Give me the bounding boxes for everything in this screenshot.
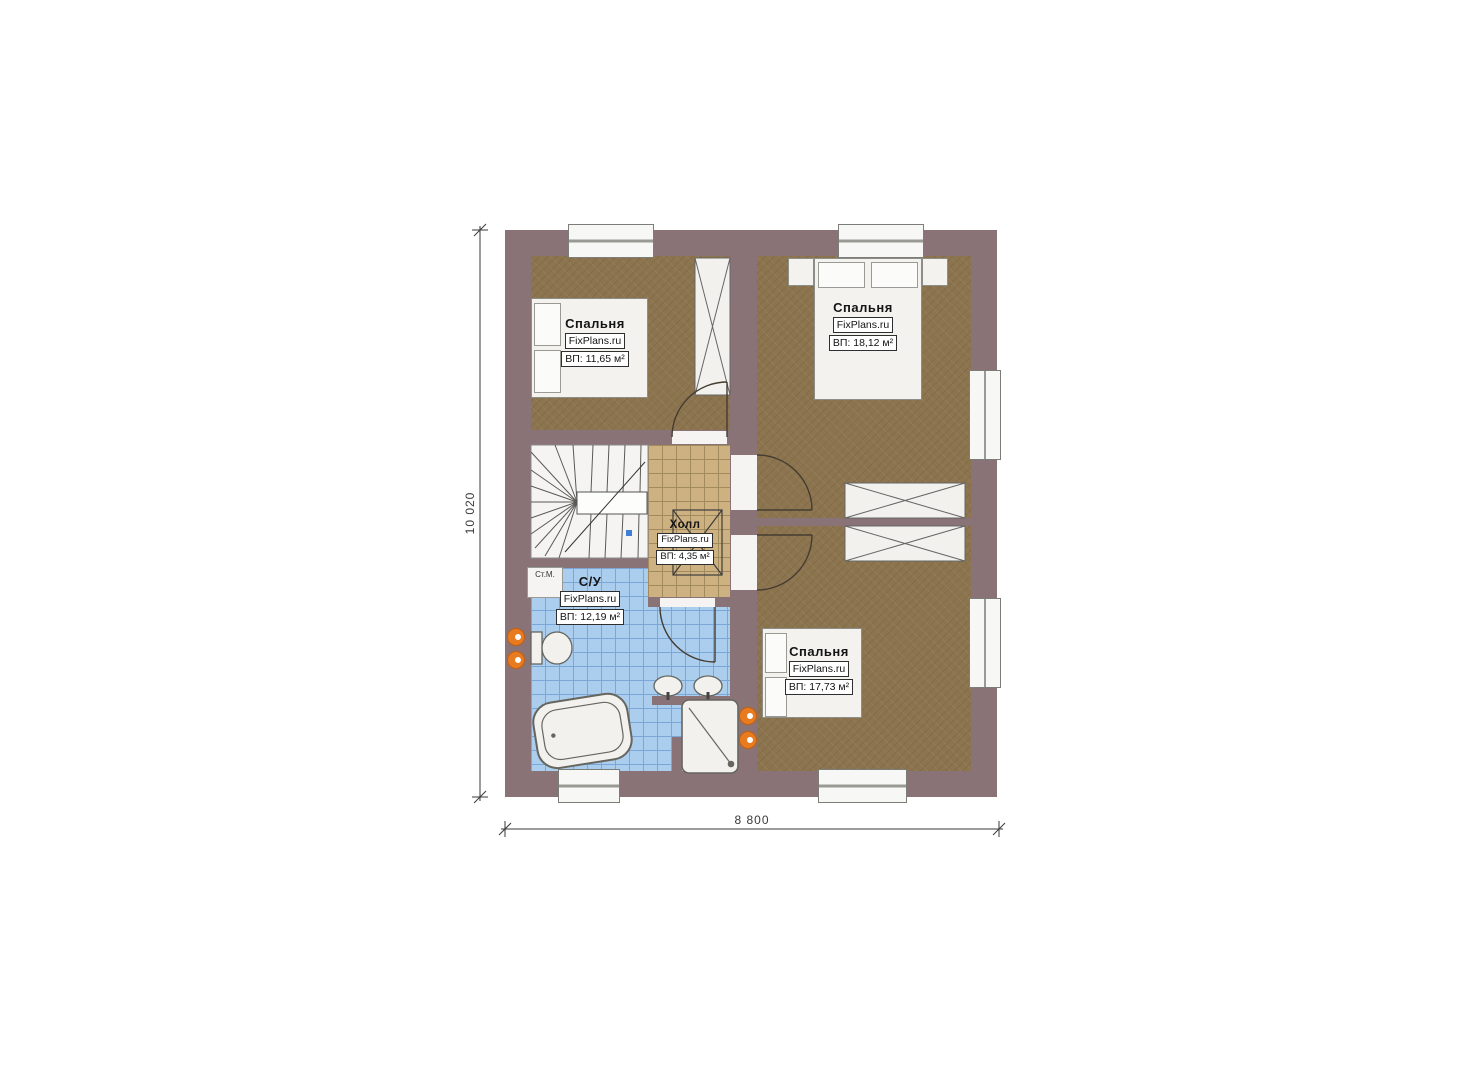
- room-label-hall: Холл FixPlans.ru ВП: 4,35 м²: [639, 519, 731, 565]
- room-area: ВП: 11,65 м²: [561, 351, 629, 367]
- window-bottom-right: [818, 769, 907, 803]
- nightstand-right: [922, 258, 948, 286]
- window-top-left: [568, 224, 654, 258]
- brand-watermark: FixPlans.ru: [565, 333, 626, 349]
- window-bottom-left: [558, 769, 620, 803]
- door-opening-bathroom: [660, 598, 715, 607]
- room-label-bedroom-top-right: Спальня FixPlans.ru ВП: 18,12 м²: [811, 300, 915, 351]
- floor-plan-canvas: 10 020 8 800: [0, 0, 1474, 1080]
- brand-watermark: FixPlans.ru: [657, 533, 713, 548]
- window-top-right: [838, 224, 924, 258]
- brand-watermark: FixPlans.ru: [833, 317, 894, 333]
- room-name: Холл: [670, 519, 701, 531]
- door-opening-bedroom-top-right: [731, 455, 757, 510]
- room-name: Спальня: [833, 300, 893, 315]
- staircase-floor: [531, 445, 648, 558]
- room-label-bathroom: С/У FixPlans.ru ВП: 12,19 м²: [541, 574, 639, 625]
- room-name: С/У: [579, 574, 602, 589]
- room-label-bedroom-top-left: Спальня FixPlans.ru ВП: 11,65 м²: [543, 316, 647, 367]
- room-area: ВП: 12,19 м²: [556, 609, 624, 625]
- pillow: [818, 262, 865, 288]
- door-opening-bedroom-bottom-right: [731, 535, 757, 590]
- room-name: Спальня: [565, 316, 625, 331]
- floor-plan: Ст.М.: [505, 230, 997, 797]
- room-name: Спальня: [789, 644, 849, 659]
- room-area: ВП: 4,35 м²: [656, 550, 713, 565]
- room-area: ВП: 18,12 м²: [829, 335, 897, 351]
- window-right-upper: [969, 370, 1001, 460]
- door-opening-bedroom-top-left: [672, 431, 727, 444]
- room-label-bedroom-bottom-right: Спальня FixPlans.ru ВП: 17,73 м²: [767, 644, 871, 695]
- dimension-width-label: 8 800: [722, 813, 782, 827]
- pillow: [871, 262, 918, 288]
- window-right-lower: [969, 598, 1001, 688]
- dimension-height-label: 10 020: [463, 488, 477, 538]
- room-area: ВП: 17,73 м²: [785, 679, 853, 695]
- nightstand-left: [788, 258, 814, 286]
- brand-watermark: FixPlans.ru: [560, 591, 621, 607]
- brand-watermark: FixPlans.ru: [789, 661, 850, 677]
